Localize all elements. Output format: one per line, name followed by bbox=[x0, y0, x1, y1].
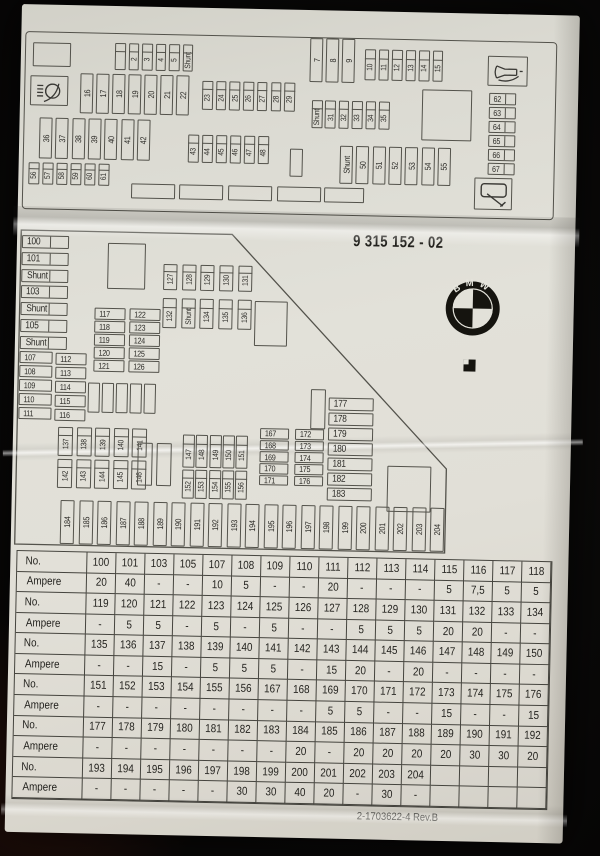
fuse-4: 4 bbox=[155, 44, 166, 71]
fuse-label: 3 bbox=[143, 58, 152, 62]
wiper-icon bbox=[474, 178, 513, 211]
fuse-28: 28 bbox=[270, 82, 281, 111]
footer-code: 2-1703622-4 Rev.B bbox=[312, 809, 438, 824]
table-cell: 20 bbox=[434, 622, 463, 643]
table-cell: 193 bbox=[83, 758, 112, 779]
fuse-label: 175 bbox=[297, 464, 311, 474]
fuse-label: 36 bbox=[41, 134, 51, 142]
fuse-15: 15 bbox=[432, 51, 443, 82]
fuse-108: 108 bbox=[19, 365, 52, 378]
fuse-8: 8 bbox=[325, 38, 339, 82]
fuse-label: 13 bbox=[406, 65, 415, 72]
part-number: 9 315 152 - 02 bbox=[353, 233, 476, 254]
fuse-label: 198 bbox=[321, 522, 331, 533]
table-cell: 179 bbox=[142, 718, 171, 739]
fuse-54: 54 bbox=[421, 147, 435, 185]
table-cell: 5 bbox=[435, 580, 464, 601]
table-cell: 15 bbox=[143, 657, 172, 678]
table-cell: 117 bbox=[493, 561, 522, 582]
fuse-153: 153 bbox=[195, 470, 208, 499]
fuse-132: 132 bbox=[162, 298, 177, 328]
fuse-62: 62 bbox=[489, 93, 516, 106]
fuse-180: 180 bbox=[328, 443, 373, 456]
fuse-label: 145 bbox=[115, 472, 124, 483]
fuse-16: 16 bbox=[80, 73, 94, 113]
fuse-171: 171 bbox=[259, 475, 288, 486]
fuse-label: 192 bbox=[210, 519, 220, 530]
table-cell: - bbox=[84, 697, 113, 718]
fuse-193: 193 bbox=[226, 503, 241, 547]
table-cell: 198 bbox=[228, 761, 257, 782]
fuse-label: 182 bbox=[330, 473, 346, 484]
fuse-202: 202 bbox=[393, 507, 408, 551]
fuse-label: 113 bbox=[57, 368, 70, 378]
fuse-116: 116 bbox=[54, 409, 85, 422]
table-cell: 195 bbox=[141, 759, 170, 780]
fuse-203: 203 bbox=[411, 507, 426, 551]
table-cell: 5 bbox=[405, 621, 434, 642]
relay-slot-blank bbox=[137, 443, 153, 486]
table-cell: 30 bbox=[256, 782, 285, 803]
fuse-42: 42 bbox=[137, 119, 151, 160]
table-cell: 171 bbox=[374, 682, 403, 703]
table-cell: 103 bbox=[145, 554, 174, 575]
fuse-label: 137 bbox=[61, 439, 70, 450]
fuse-label: Shunt bbox=[184, 308, 193, 324]
fuse-51: 51 bbox=[372, 146, 386, 184]
fuse-175: 175 bbox=[294, 464, 323, 475]
fuse-38: 38 bbox=[71, 118, 85, 159]
fuse-label: 152 bbox=[183, 481, 192, 492]
relay-slot-blank bbox=[254, 301, 288, 347]
table-cell: - bbox=[198, 781, 227, 802]
fuse-label: 138 bbox=[79, 439, 88, 450]
fuse-label: 61 bbox=[99, 173, 108, 180]
fuse-44: 44 bbox=[202, 135, 213, 163]
table-cell: 177 bbox=[84, 717, 113, 738]
fuse-63: 63 bbox=[489, 107, 516, 120]
fuse-50: 50 bbox=[356, 146, 370, 184]
table-cell: 139 bbox=[201, 637, 230, 658]
fuse-label: 27 bbox=[258, 96, 267, 103]
fuse-43: 43 bbox=[188, 135, 199, 163]
fuse-label: 108 bbox=[22, 366, 36, 376]
table-cell: 40 bbox=[285, 783, 314, 804]
table-cell: - bbox=[83, 738, 112, 759]
table-cell: 5 bbox=[144, 615, 173, 636]
fuse-130: 130 bbox=[219, 265, 234, 291]
fuse-195: 195 bbox=[263, 504, 278, 548]
table-cell: - bbox=[199, 740, 228, 761]
fuse-label: 116 bbox=[57, 410, 70, 420]
fuse-21: 21 bbox=[160, 75, 174, 115]
fuse-label: 167 bbox=[262, 428, 276, 438]
table-cell: 20 bbox=[373, 744, 402, 765]
table-cell: - bbox=[462, 663, 491, 684]
fuse-label: 109 bbox=[21, 380, 35, 390]
fuse-label: 200 bbox=[358, 523, 368, 534]
table-cell: 132 bbox=[463, 602, 492, 623]
fuse-label: 193 bbox=[229, 520, 239, 531]
table-cell: 156 bbox=[229, 679, 258, 700]
table-cell: 20 bbox=[402, 744, 431, 765]
table-cell: 131 bbox=[434, 601, 463, 622]
fuse-label: 54 bbox=[423, 163, 433, 171]
fuse-label: 194 bbox=[247, 520, 257, 531]
fuse-37: 37 bbox=[55, 118, 69, 159]
fuse-7: 7 bbox=[309, 38, 323, 82]
fuse-shunt: Shunt bbox=[339, 146, 353, 184]
table-cell: 124 bbox=[231, 597, 260, 618]
fuse-label: 62 bbox=[491, 94, 501, 104]
fuse-label: 101 bbox=[24, 253, 40, 264]
fuse-34: 34 bbox=[365, 101, 376, 129]
relay-slot-blank bbox=[143, 384, 156, 414]
fuse-36: 36 bbox=[39, 117, 53, 158]
table-cell: 178 bbox=[113, 718, 142, 739]
fuse-label: 134 bbox=[202, 311, 211, 322]
table-cell: - bbox=[86, 614, 115, 635]
table-cell: - bbox=[406, 580, 435, 601]
fuse-label: 178 bbox=[331, 413, 347, 424]
table-cell: 168 bbox=[287, 680, 316, 701]
fuse-197: 197 bbox=[300, 505, 315, 549]
table-cell: 184 bbox=[287, 721, 316, 742]
fuse-label: 48 bbox=[259, 149, 268, 156]
fuse-label: 105 bbox=[23, 320, 39, 331]
fuse-label: 132 bbox=[165, 311, 174, 322]
fuse-card: 9 315 152 - 02 BMW No.100101103105107108… bbox=[5, 4, 580, 844]
table-cell: 107 bbox=[203, 555, 232, 576]
fuse-label: 115 bbox=[57, 396, 70, 406]
fuse-label: 12 bbox=[392, 65, 401, 72]
fuse-label: 32 bbox=[339, 114, 348, 121]
fuse-label: 156 bbox=[236, 483, 245, 494]
fuse-127: 127 bbox=[163, 264, 178, 290]
fuse-label: 21 bbox=[162, 91, 172, 99]
fuse-label: 153 bbox=[197, 482, 206, 493]
table-cell: - bbox=[114, 656, 143, 677]
fuse-151: 151 bbox=[236, 436, 249, 469]
fuse-label: 67 bbox=[489, 164, 499, 174]
fuse-label: 143 bbox=[79, 471, 88, 482]
table-cell: 114 bbox=[406, 559, 435, 580]
fuse-label: 118 bbox=[96, 321, 109, 331]
fuse-26: 26 bbox=[243, 82, 254, 111]
fuse-19: 19 bbox=[128, 74, 142, 114]
table-row-label: Ampere bbox=[12, 777, 82, 799]
fuse-194: 194 bbox=[245, 504, 260, 548]
fuse-label: 34 bbox=[366, 114, 375, 121]
table-cell: 151 bbox=[85, 676, 114, 697]
fuse-label: 7 bbox=[311, 58, 321, 62]
table-cell: 20 bbox=[314, 784, 343, 805]
fuse-label: 5 bbox=[170, 58, 179, 62]
table-cell: - bbox=[374, 703, 403, 724]
table-cell: 101 bbox=[116, 553, 145, 574]
table-cell: 20 bbox=[463, 622, 492, 643]
table-cell: 20 bbox=[286, 742, 315, 763]
fuse-label: 122 bbox=[132, 309, 146, 319]
fuse-56: 56 bbox=[28, 162, 39, 184]
fuse-31: 31 bbox=[325, 100, 336, 128]
table-cell: - bbox=[140, 780, 169, 801]
table-cell: - bbox=[174, 575, 203, 596]
fuse-label: Shunt bbox=[183, 52, 192, 68]
fuse-126: 126 bbox=[128, 360, 159, 372]
fuse-39: 39 bbox=[88, 118, 102, 159]
fuse-label: 60 bbox=[85, 173, 94, 180]
table-cell bbox=[430, 786, 459, 807]
fuse-178: 178 bbox=[328, 413, 373, 426]
table-cell: 15 bbox=[317, 660, 346, 681]
fuse-131: 131 bbox=[238, 266, 253, 292]
fuse-label: 176 bbox=[296, 476, 310, 486]
table-cell: 116 bbox=[464, 560, 493, 581]
table-cell: 174 bbox=[461, 684, 490, 705]
table-cell: 149 bbox=[491, 643, 520, 664]
fuse-101: 101 bbox=[22, 252, 69, 266]
fuse-label: 38 bbox=[73, 135, 83, 143]
fuse-134: 134 bbox=[200, 299, 215, 329]
relay-slot-blank bbox=[289, 149, 303, 177]
fuse-label: 29 bbox=[285, 96, 294, 103]
table-cell: 197 bbox=[199, 761, 228, 782]
fuse-label: 151 bbox=[237, 450, 246, 461]
fuse-slot-blank bbox=[115, 43, 126, 70]
table-cell: 173 bbox=[432, 683, 461, 704]
fuse-label: 42 bbox=[138, 136, 148, 144]
table-cell: 152 bbox=[114, 677, 143, 698]
table-cell: 20 bbox=[431, 745, 460, 766]
table-cell: 113 bbox=[377, 559, 406, 580]
table-cell: - bbox=[200, 699, 229, 720]
fuse-label: 9 bbox=[343, 59, 353, 63]
fuse-155: 155 bbox=[222, 470, 235, 499]
fuse-174: 174 bbox=[294, 452, 323, 463]
fuse-100: 100 bbox=[22, 235, 69, 249]
photo-background: 9 315 152 - 02 BMW No.100101103105107108… bbox=[0, 0, 600, 856]
table-cell: 183 bbox=[258, 721, 287, 742]
table-cell: 5 bbox=[316, 701, 345, 722]
table-cell: - bbox=[170, 739, 199, 760]
table-cell: 122 bbox=[173, 595, 202, 616]
table-cell: 125 bbox=[260, 597, 289, 618]
fuse-label: 177 bbox=[331, 398, 347, 409]
table-cell: 5 bbox=[347, 620, 376, 641]
fuse-label: 4 bbox=[156, 58, 165, 62]
table-cell: - bbox=[141, 739, 170, 760]
table-cell: 130 bbox=[405, 600, 434, 621]
fuse-label: 26 bbox=[244, 95, 253, 102]
fuse-label: 189 bbox=[155, 518, 165, 529]
fuse-label: 17 bbox=[98, 90, 108, 98]
fuse-label: 186 bbox=[99, 517, 109, 528]
fuse-label: 22 bbox=[178, 92, 188, 100]
fuse-128: 128 bbox=[182, 264, 197, 290]
table-cell: 15 bbox=[432, 704, 461, 725]
fuse-label: 140 bbox=[116, 440, 125, 451]
fuse-41: 41 bbox=[120, 119, 134, 160]
table-cell: 153 bbox=[142, 677, 171, 698]
table-cell: - bbox=[258, 700, 287, 721]
fuse-label: 130 bbox=[222, 275, 231, 286]
fuse-182: 182 bbox=[327, 472, 372, 485]
fuse-label: Shunt bbox=[24, 270, 47, 281]
table-cell: 5 bbox=[260, 618, 289, 639]
fuse-label: 59 bbox=[71, 173, 80, 180]
fuse-149: 149 bbox=[209, 435, 222, 468]
fuse-129: 129 bbox=[200, 265, 215, 291]
fuse-label: 201 bbox=[376, 523, 386, 534]
fuse-label: 8 bbox=[327, 59, 337, 63]
fuse-60: 60 bbox=[84, 163, 95, 185]
fuse-label: 56 bbox=[29, 172, 38, 179]
table-cell: 202 bbox=[344, 764, 373, 785]
table-cell: 148 bbox=[462, 643, 491, 664]
table-cell: 147 bbox=[433, 642, 462, 663]
table-cell: 128 bbox=[347, 599, 376, 620]
fuse-label: 35 bbox=[379, 115, 388, 122]
table-cell: - bbox=[261, 577, 290, 598]
fuse-label: 119 bbox=[96, 334, 109, 344]
table-cell: - bbox=[348, 579, 377, 600]
table-cell: 201 bbox=[315, 763, 344, 784]
relay-slot-blank bbox=[156, 443, 172, 486]
table-cell: - bbox=[229, 700, 258, 721]
fuse-label: 187 bbox=[118, 518, 128, 529]
fuse-label: 39 bbox=[90, 135, 100, 143]
table-cell: 187 bbox=[374, 723, 403, 744]
table-cell: 142 bbox=[288, 639, 317, 660]
fuse-186: 186 bbox=[97, 501, 112, 545]
table-cell: 30 bbox=[372, 785, 401, 806]
fuse-20: 20 bbox=[144, 75, 158, 115]
relay-slot-blank bbox=[33, 42, 71, 67]
fuse-117: 117 bbox=[94, 308, 125, 320]
fuse-label: 117 bbox=[97, 308, 110, 318]
fuse-113: 113 bbox=[55, 367, 86, 380]
table-cell: 169 bbox=[316, 681, 345, 702]
relay-slot-blank bbox=[107, 243, 146, 290]
fuse-label: 183 bbox=[329, 488, 345, 499]
table-row-label: No. bbox=[17, 551, 87, 573]
fuse-label: 37 bbox=[57, 135, 67, 143]
fuse-13: 13 bbox=[405, 50, 416, 81]
fuse-24: 24 bbox=[216, 81, 227, 110]
fuse-label: 14 bbox=[419, 65, 428, 72]
fuse-label: Shunt bbox=[24, 303, 47, 314]
table-cell: 109 bbox=[261, 556, 290, 577]
fuse-152: 152 bbox=[182, 469, 195, 498]
fuse-label: 64 bbox=[490, 122, 500, 132]
table-cell: 40 bbox=[116, 574, 145, 595]
fuse-label: 142 bbox=[60, 471, 69, 482]
fuse-172: 172 bbox=[295, 429, 324, 440]
amperage-table: No.1001011031051071081091101111121131141… bbox=[11, 550, 552, 810]
fuse-136: 136 bbox=[237, 300, 252, 330]
relay-slot-blank bbox=[101, 383, 114, 413]
fuse-58: 58 bbox=[56, 163, 67, 185]
table-cell: 5 bbox=[259, 659, 288, 680]
table-cell: 146 bbox=[404, 641, 433, 662]
fuse-18: 18 bbox=[112, 74, 126, 114]
fuse-176: 176 bbox=[294, 476, 323, 487]
table-cell: 196 bbox=[170, 760, 199, 781]
table-cell: 5 bbox=[376, 620, 405, 641]
relay-slot-blank bbox=[421, 89, 472, 141]
table-cell: 5 bbox=[345, 702, 374, 723]
fuse-shunt: Shunt bbox=[181, 298, 196, 328]
table-cell bbox=[488, 787, 517, 808]
fuse-66: 66 bbox=[488, 149, 515, 162]
table-cell: 189 bbox=[432, 724, 461, 745]
table-cell: 110 bbox=[290, 557, 319, 578]
fuse-5: 5 bbox=[169, 44, 180, 71]
fuse-label: 23 bbox=[203, 95, 212, 102]
fuse-150: 150 bbox=[222, 435, 235, 468]
fuse-label: 180 bbox=[330, 443, 346, 454]
fuse-label: 202 bbox=[395, 523, 405, 534]
table-cell: 10 bbox=[203, 575, 232, 596]
fuse-label: 43 bbox=[189, 148, 198, 155]
table-cell: 100 bbox=[87, 552, 116, 573]
fuse-label: 16 bbox=[82, 90, 92, 98]
table-cell: 126 bbox=[289, 598, 318, 619]
fuse-12: 12 bbox=[391, 50, 402, 81]
fuse-label: 110 bbox=[21, 394, 34, 404]
fuse-label: 196 bbox=[284, 521, 294, 532]
table-cell: 145 bbox=[375, 641, 404, 662]
fuse-137: 137 bbox=[58, 427, 74, 456]
fuse-label: 114 bbox=[57, 382, 70, 392]
relay-slot-blank bbox=[87, 382, 100, 412]
fuse-125: 125 bbox=[129, 347, 160, 359]
fuse-label: 46 bbox=[231, 149, 240, 156]
table-cell: 136 bbox=[114, 635, 143, 656]
table-cell: - bbox=[375, 661, 404, 682]
fuse-label: Shunt bbox=[23, 337, 46, 348]
fuse-112: 112 bbox=[55, 353, 86, 366]
fuse-label: 103 bbox=[23, 286, 39, 297]
fuse-label: 33 bbox=[353, 114, 362, 121]
fuse-40: 40 bbox=[104, 119, 118, 160]
table-cell: - bbox=[111, 779, 140, 800]
table-row-label: Ampere bbox=[17, 572, 87, 594]
fuse-198: 198 bbox=[319, 505, 334, 549]
fuse-label: 15 bbox=[433, 66, 442, 73]
table-cell: 115 bbox=[435, 560, 464, 581]
table-cell: 30 bbox=[227, 782, 256, 803]
fuse-label: 24 bbox=[216, 95, 225, 102]
table-cell: - bbox=[401, 785, 430, 806]
fuse-192: 192 bbox=[208, 503, 223, 547]
table-cell: - bbox=[171, 698, 200, 719]
table-cell: 143 bbox=[317, 640, 346, 661]
fuse-9: 9 bbox=[341, 39, 355, 83]
table-cell: - bbox=[461, 704, 490, 725]
table-cell: - bbox=[142, 698, 171, 719]
table-cell: 181 bbox=[200, 720, 229, 741]
table-cell: 105 bbox=[174, 554, 203, 575]
fuse-105: 105 bbox=[20, 319, 67, 333]
fuse-181: 181 bbox=[327, 457, 372, 470]
fuse-label: 55 bbox=[439, 163, 449, 171]
fuse-label: 203 bbox=[413, 524, 423, 535]
fuse-label: 100 bbox=[24, 236, 40, 247]
fuse-143: 143 bbox=[75, 459, 91, 488]
fuse-145: 145 bbox=[112, 460, 128, 489]
